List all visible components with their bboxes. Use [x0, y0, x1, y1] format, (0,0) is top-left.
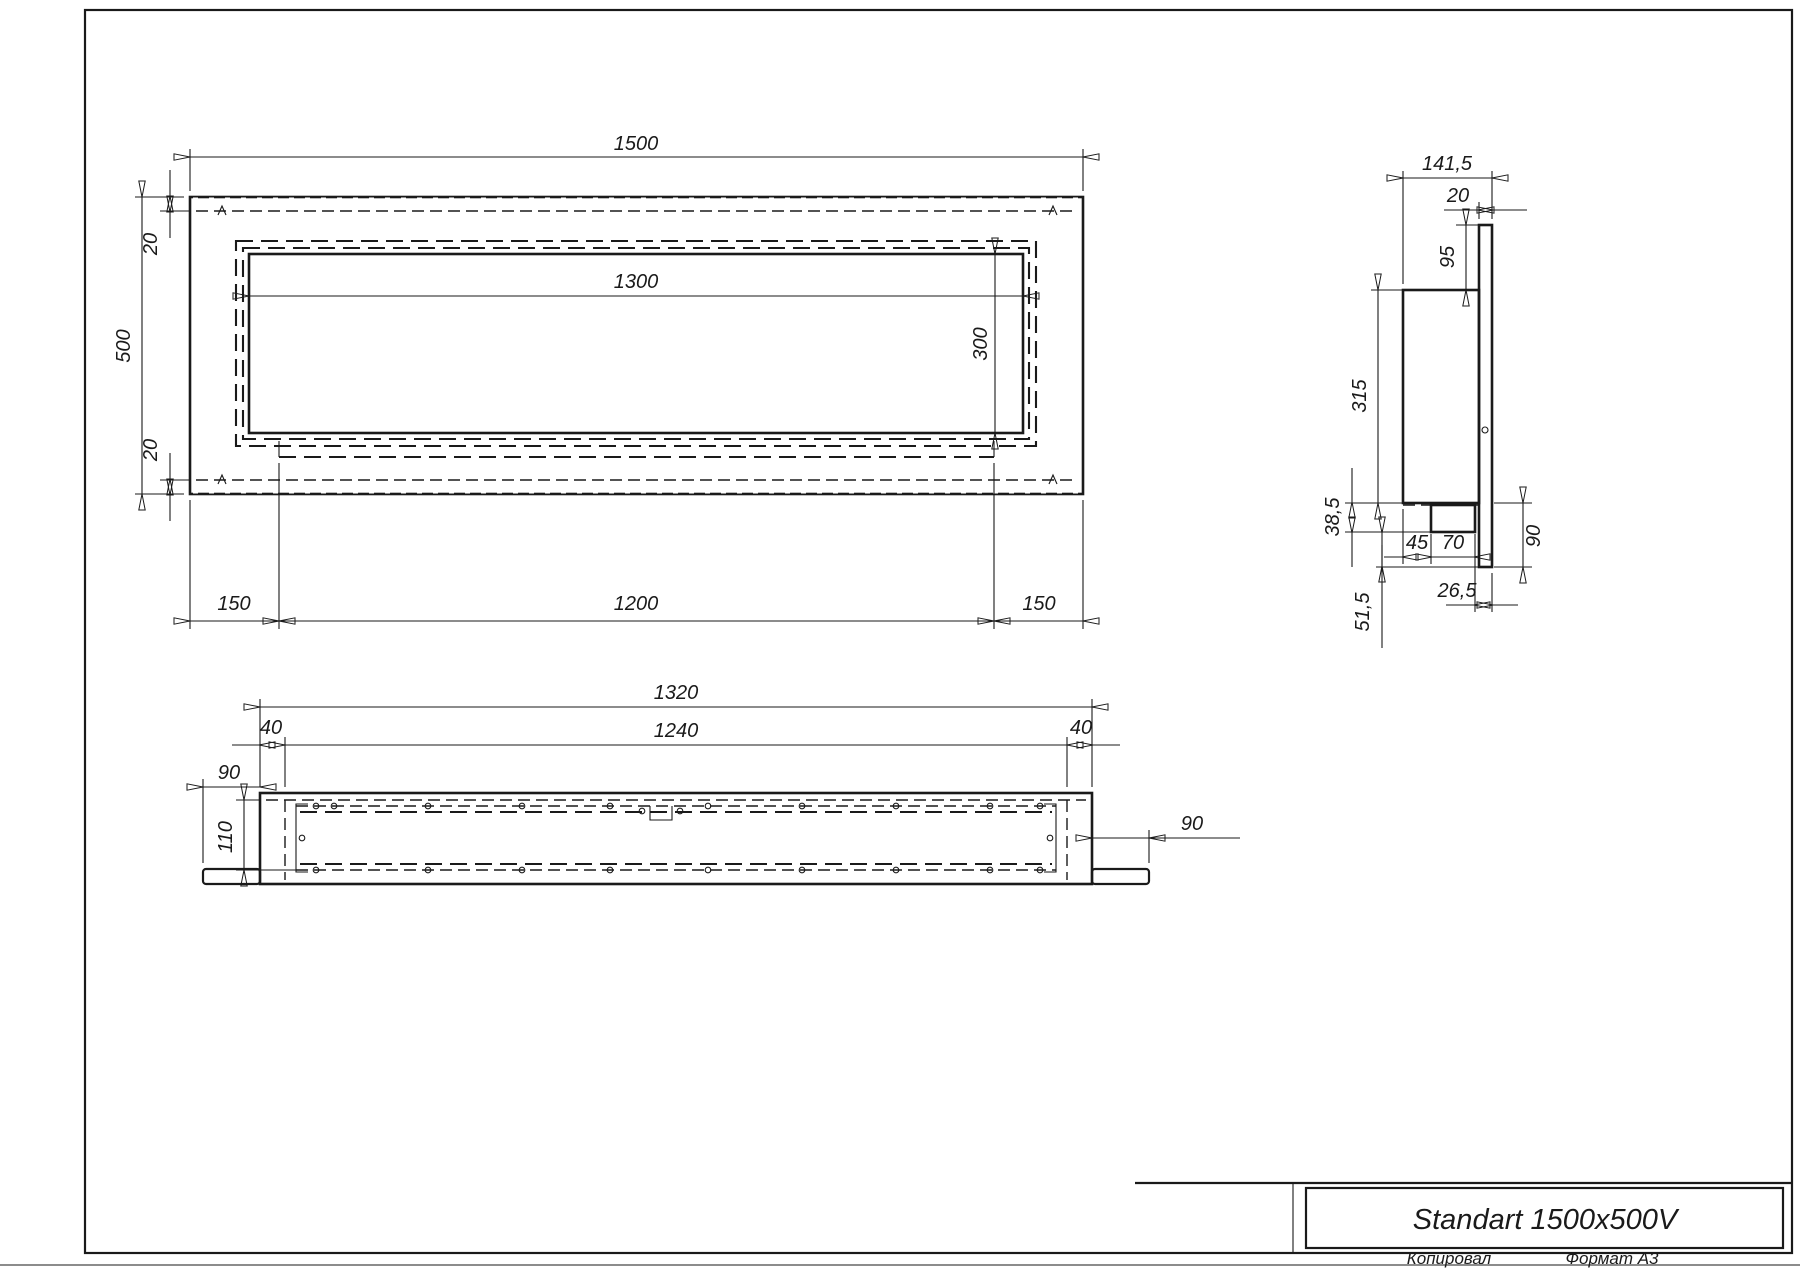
- front-view: 1500 500 20 20 1300 300 150 1200 150: [113, 133, 1083, 629]
- drawing-sheet: 1500 500 20 20 1300 300 150 1200 150: [0, 0, 1800, 1273]
- page-edge-strip: [0, 1265, 1800, 1273]
- side-fuel-block: [1431, 505, 1475, 532]
- front-dim-opening-width: 1300: [614, 271, 659, 293]
- side-hole: [1482, 427, 1488, 433]
- side-dim-fuel-width: 70: [1442, 532, 1464, 554]
- side-dim-back-offset: 26,5: [1437, 580, 1478, 602]
- bottom-dim-box-width: 1320: [654, 682, 699, 704]
- bottom-flange-left: [203, 869, 260, 884]
- bottom-dim-inner-depth: 110: [215, 821, 237, 853]
- front-dim-width: 1500: [614, 133, 659, 155]
- side-dim-fuel-offset: 45: [1406, 532, 1429, 554]
- front-dim-opening-height: 300: [970, 327, 992, 360]
- side-view: 141,5 20 95 315 38,5 51,5 90: [1322, 153, 1545, 648]
- bottom-flange-right: [1092, 869, 1149, 884]
- bottom-dim-inner-width: 1240: [654, 720, 699, 742]
- front-dim-insert-width: 1200: [614, 593, 659, 615]
- front-dim-flange-top: 20: [140, 233, 162, 256]
- side-dim-drop: 51,5: [1352, 592, 1374, 632]
- bottom-view: 1320 1240 40 40 90 90 110: [203, 682, 1240, 884]
- front-dim-height: 500: [113, 329, 135, 362]
- side-dim-depth: 141,5: [1422, 153, 1473, 175]
- front-dim-offset-right: 150: [1022, 593, 1055, 615]
- side-dim-top-gap: 95: [1437, 245, 1459, 268]
- front-dim-flange-bottom: 20: [140, 439, 162, 462]
- bottom-dim-wall-right: 40: [1070, 717, 1092, 739]
- side-dim-plate-bottom: 90: [1523, 525, 1545, 547]
- bottom-dim-wall-left: 40: [260, 717, 282, 739]
- title-block: Standart 1500x500V: [1135, 1183, 1792, 1253]
- side-front-plate: [1479, 225, 1492, 567]
- front-dim-offset-left: 150: [217, 593, 250, 615]
- bottom-dim-flange-left: 90: [218, 762, 240, 784]
- side-body: [1403, 290, 1479, 503]
- side-dim-front-plate: 20: [1446, 185, 1469, 207]
- bottom-dim-flange-right: 90: [1181, 813, 1203, 835]
- bottom-holes: [299, 803, 1053, 873]
- side-dim-shelf-height: 38,5: [1322, 497, 1344, 537]
- drawing-title: Standart 1500x500V: [1413, 1204, 1680, 1236]
- side-dim-body-height: 315: [1349, 378, 1371, 412]
